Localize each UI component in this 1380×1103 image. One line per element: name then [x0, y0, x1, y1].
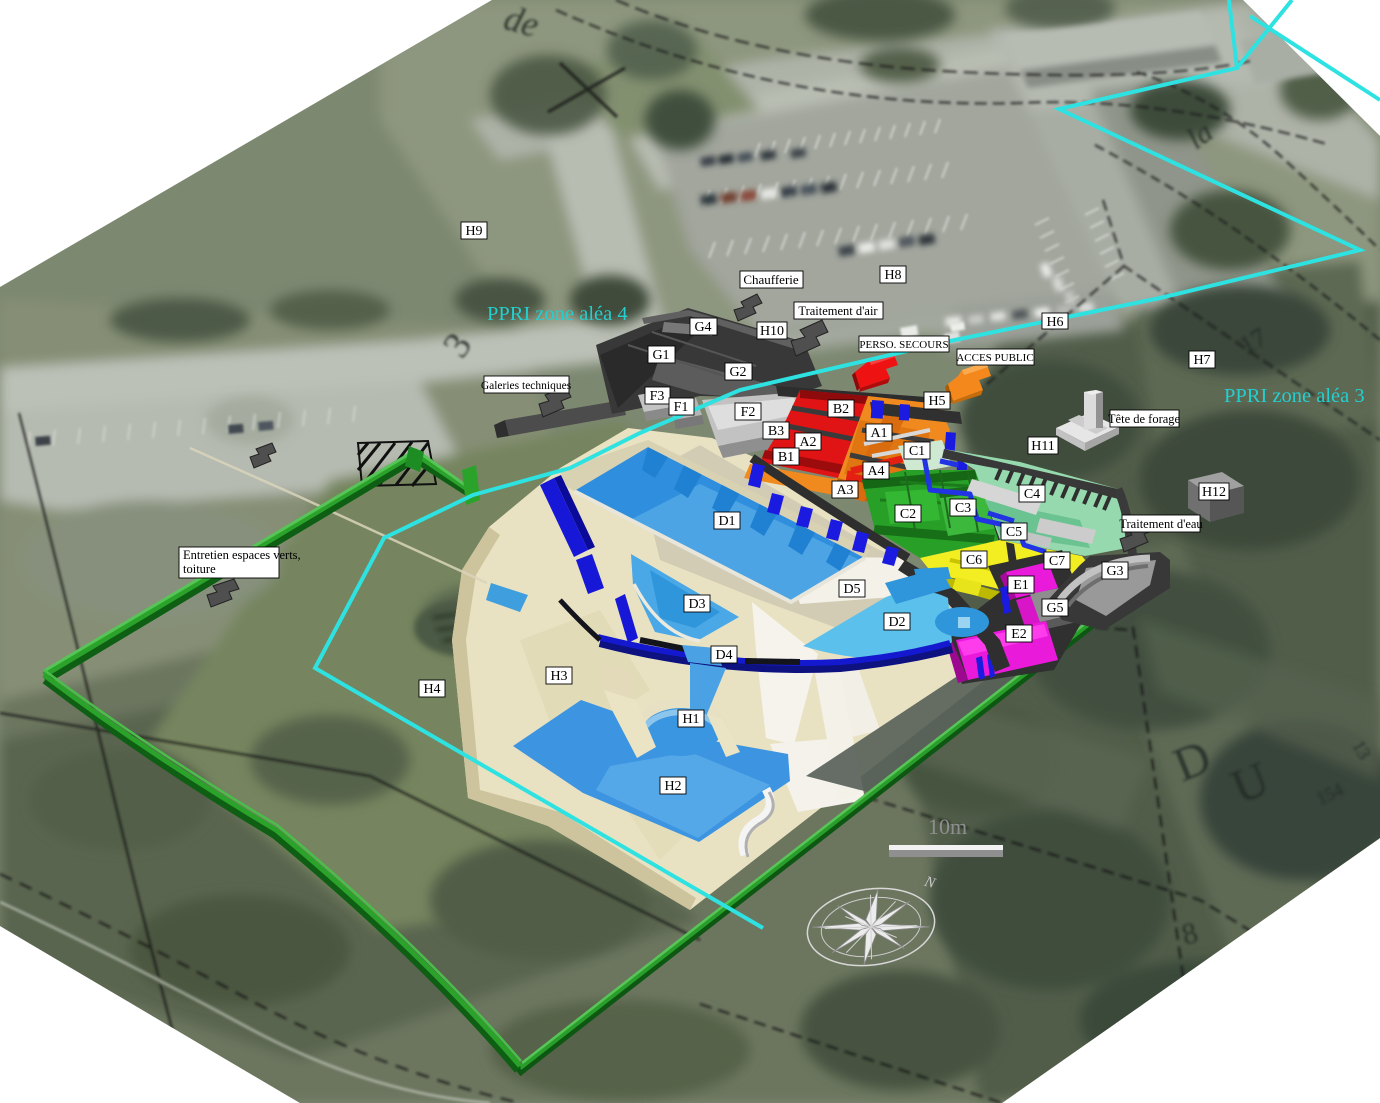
- svg-text:H10: H10: [760, 324, 784, 339]
- svg-text:C1: C1: [909, 444, 925, 459]
- svg-text:C6: C6: [966, 553, 982, 568]
- svg-text:C4: C4: [1024, 487, 1040, 502]
- svg-text:H3: H3: [550, 669, 567, 684]
- svg-text:A3: A3: [836, 483, 853, 498]
- svg-text:H7: H7: [1193, 353, 1210, 368]
- svg-text:B3: B3: [768, 424, 784, 439]
- svg-text:D4: D4: [715, 648, 732, 663]
- svg-text:H11: H11: [1031, 439, 1055, 454]
- svg-text:F3: F3: [650, 389, 665, 404]
- svg-text:D1: D1: [718, 514, 735, 529]
- svg-text:H12: H12: [1202, 485, 1226, 500]
- svg-text:Tête de forage: Tête de forage: [1108, 412, 1181, 426]
- svg-text:C5: C5: [1006, 525, 1022, 540]
- svg-text:A2: A2: [799, 435, 816, 450]
- svg-text:C2: C2: [900, 507, 916, 522]
- svg-text:G3: G3: [1106, 564, 1123, 579]
- svg-text:E2: E2: [1011, 627, 1027, 642]
- svg-text:H2: H2: [664, 779, 681, 794]
- svg-text:ACCES PUBLIC: ACCES PUBLIC: [956, 352, 1033, 364]
- svg-text:H9: H9: [465, 224, 482, 239]
- svg-text:10m: 10m: [928, 814, 967, 839]
- svg-text:Galeries techniques: Galeries techniques: [481, 380, 572, 392]
- svg-text:H6: H6: [1046, 315, 1063, 330]
- svg-text:H4: H4: [423, 682, 440, 697]
- svg-text:PPRI zone aléa 3: PPRI zone aléa 3: [1224, 385, 1365, 407]
- svg-text:A4: A4: [867, 464, 884, 479]
- svg-text:E1: E1: [1013, 578, 1029, 593]
- svg-text:G5: G5: [1046, 601, 1063, 616]
- svg-text:C7: C7: [1049, 554, 1065, 569]
- svg-text:Traitement d'eau: Traitement d'eau: [1119, 517, 1203, 531]
- svg-text:D5: D5: [843, 582, 860, 597]
- svg-text:D2: D2: [888, 615, 905, 630]
- svg-text:G1: G1: [652, 348, 669, 363]
- svg-text:H8: H8: [884, 268, 901, 283]
- svg-text:Entretien espaces verts,: Entretien espaces verts,: [183, 548, 301, 562]
- svg-text:C3: C3: [955, 501, 971, 516]
- svg-text:F2: F2: [741, 405, 756, 420]
- svg-text:toiture: toiture: [183, 562, 216, 576]
- svg-text:G2: G2: [729, 365, 746, 380]
- svg-text:Traitement d'air: Traitement d'air: [798, 304, 878, 318]
- svg-text:D3: D3: [688, 597, 705, 612]
- svg-text:F1: F1: [674, 400, 689, 415]
- svg-text:H5: H5: [928, 394, 945, 409]
- svg-text:G4: G4: [694, 320, 711, 335]
- svg-text:Chaufferie: Chaufferie: [743, 272, 799, 287]
- svg-text:B1: B1: [778, 450, 794, 465]
- svg-text:B2: B2: [833, 402, 849, 417]
- svg-text:A1: A1: [870, 426, 887, 441]
- svg-text:PPRI zone aléa 4: PPRI zone aléa 4: [487, 303, 628, 325]
- svg-text:PERSO. SECOURS: PERSO. SECOURS: [859, 339, 948, 351]
- svg-text:H1: H1: [682, 712, 699, 727]
